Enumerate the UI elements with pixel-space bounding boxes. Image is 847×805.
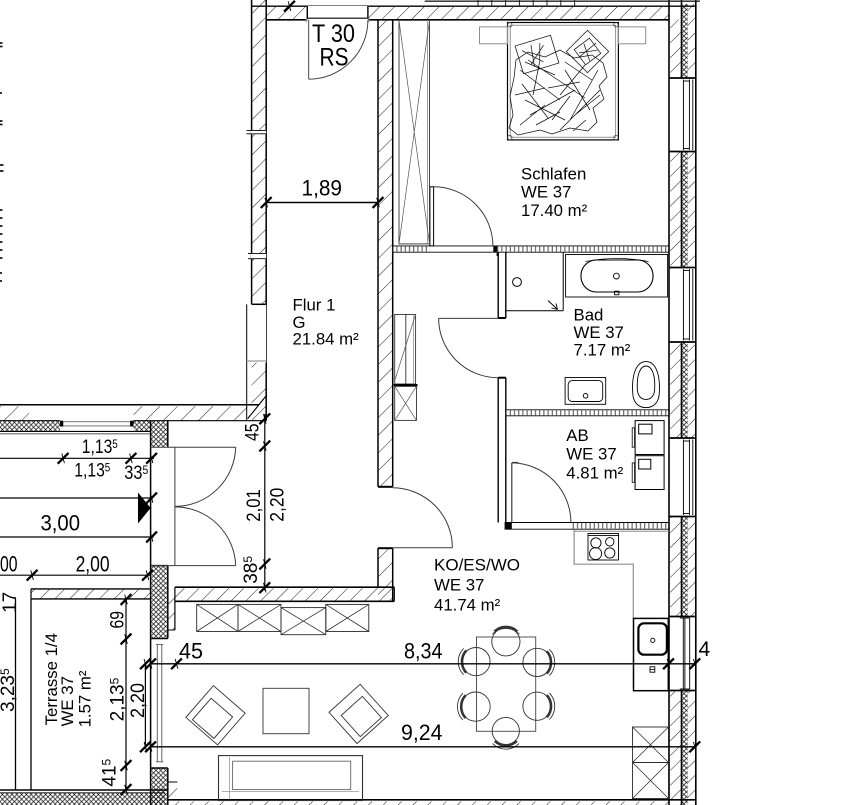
svg-text:3,00: 3,00 xyxy=(41,511,81,536)
svg-text:WE 37: WE 37 xyxy=(521,183,571,202)
svg-text:4.81 m²: 4.81 m² xyxy=(566,464,623,483)
svg-text:2,01: 2,01 xyxy=(244,489,265,522)
svg-text:17: 17 xyxy=(0,592,21,613)
svg-text:KO/ES/WO: KO/ES/WO xyxy=(434,555,520,574)
svg-text:WE 37: WE 37 xyxy=(566,445,616,464)
svg-text:69: 69 xyxy=(108,611,129,629)
svg-text:1,89: 1,89 xyxy=(302,176,343,201)
svg-text:WE 37: WE 37 xyxy=(574,323,624,342)
svg-text:AB: AB xyxy=(566,426,588,445)
svg-text:WE 37: WE 37 xyxy=(434,576,484,595)
svg-text:4: 4 xyxy=(699,638,711,661)
svg-text:00: 00 xyxy=(0,552,18,577)
svg-text:45: 45 xyxy=(179,639,203,664)
svg-text:Bad: Bad xyxy=(574,305,604,324)
svg-text:21.84 m²: 21.84 m² xyxy=(293,329,360,348)
svg-text:2,00: 2,00 xyxy=(76,552,110,577)
svg-text:1.57 m²: 1.57 m² xyxy=(76,670,95,727)
svg-text:41.74 m²: 41.74 m² xyxy=(434,596,501,615)
svg-text:45: 45 xyxy=(243,424,264,442)
svg-text:2,20: 2,20 xyxy=(128,683,149,718)
svg-text:Schlafen: Schlafen xyxy=(521,164,586,183)
svg-text:WE 37: WE 37 xyxy=(58,676,77,726)
svg-text:9,24: 9,24 xyxy=(401,720,443,745)
svg-text:17.40 m²: 17.40 m² xyxy=(521,201,588,220)
svg-text:RS: RS xyxy=(320,44,349,72)
svg-text:8,34: 8,34 xyxy=(404,639,443,664)
svg-text:7.17 m²: 7.17 m² xyxy=(574,341,631,360)
svg-text:Flur 1: Flur 1 xyxy=(293,295,336,314)
svg-text:2,20: 2,20 xyxy=(267,488,288,522)
